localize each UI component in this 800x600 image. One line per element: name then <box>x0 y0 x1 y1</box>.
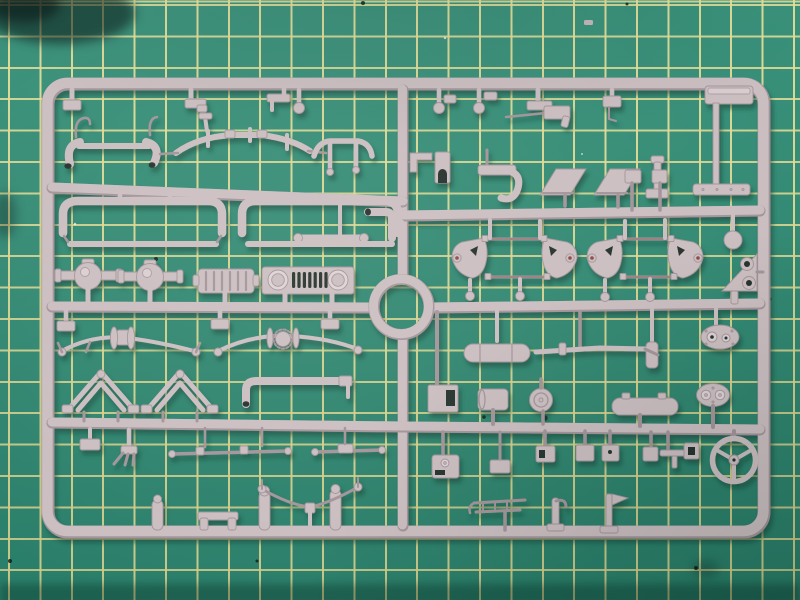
part-shock-cylinder-c <box>330 485 341 531</box>
part-front-axle-right <box>214 328 362 356</box>
part-ball-pin-a <box>294 90 305 114</box>
part-fuel-tank <box>612 393 678 426</box>
part-a-frame-right <box>141 370 218 421</box>
part-stub-block <box>63 90 81 110</box>
part-spare-ring <box>374 279 430 335</box>
part-tie-rod-left <box>169 428 292 458</box>
photo-model-kit-sprue-on-cutting-mat <box>0 0 800 600</box>
part-arched-door-block <box>435 152 450 183</box>
part-hanger-cylinder <box>646 310 658 368</box>
part-front-bumper-tubes <box>64 117 157 169</box>
part-axle-housing-left <box>55 259 122 303</box>
part-muffler <box>464 310 530 362</box>
part-chassis-frame-right <box>587 220 703 302</box>
part-disc-cap <box>724 215 742 249</box>
part-slatted-intercooler <box>193 269 259 303</box>
part-ball-pin-b <box>434 90 457 114</box>
part-short-tube-bar <box>314 141 372 176</box>
part-small-boxes-row <box>536 431 699 468</box>
part-front-axle-left <box>58 327 200 356</box>
part-running-board <box>693 103 750 195</box>
part-runner-clip <box>410 153 432 172</box>
part-exhaust-pipe <box>536 312 658 355</box>
part-l-pipe <box>243 376 352 407</box>
part-bench-seat-left <box>540 169 586 206</box>
part-gearbox-cover <box>701 309 739 349</box>
part-stub-foot <box>185 90 207 112</box>
part-pad-small <box>490 432 510 473</box>
part-round-lid <box>530 379 553 424</box>
part-u-channel-bumper-left <box>63 193 222 244</box>
part-chassis-frame-left <box>452 220 577 301</box>
part-round-end-bar <box>294 205 369 243</box>
part-a-frame-left <box>62 370 139 421</box>
part-angle-bracket <box>267 88 290 110</box>
part-steering-wheel <box>713 431 756 482</box>
part-pad-stub <box>80 429 100 450</box>
part-jeep-grille <box>262 267 354 303</box>
part-hook-block <box>603 90 621 121</box>
sprue-photo-svg <box>0 0 800 600</box>
part-claw-manifold <box>114 430 137 465</box>
part-instrument-panel <box>697 384 730 428</box>
part-fender-bracket <box>432 432 459 478</box>
part-shock-cylinder-a <box>152 495 163 530</box>
part-cylinder-can <box>478 389 508 424</box>
part-mold-tag <box>705 86 753 104</box>
part-hook-hammer <box>478 150 519 199</box>
debris-fragment <box>584 20 593 25</box>
part-axle-housing-right <box>118 260 183 303</box>
part-ball-pin-c <box>474 90 498 114</box>
part-notched-box <box>428 312 458 412</box>
part-curved-sway-bar <box>160 113 326 154</box>
sprue <box>47 83 764 533</box>
part-triangle-bracket <box>722 254 763 304</box>
part-wishbone-linkage <box>258 478 362 528</box>
part-hooked-post <box>547 498 566 531</box>
